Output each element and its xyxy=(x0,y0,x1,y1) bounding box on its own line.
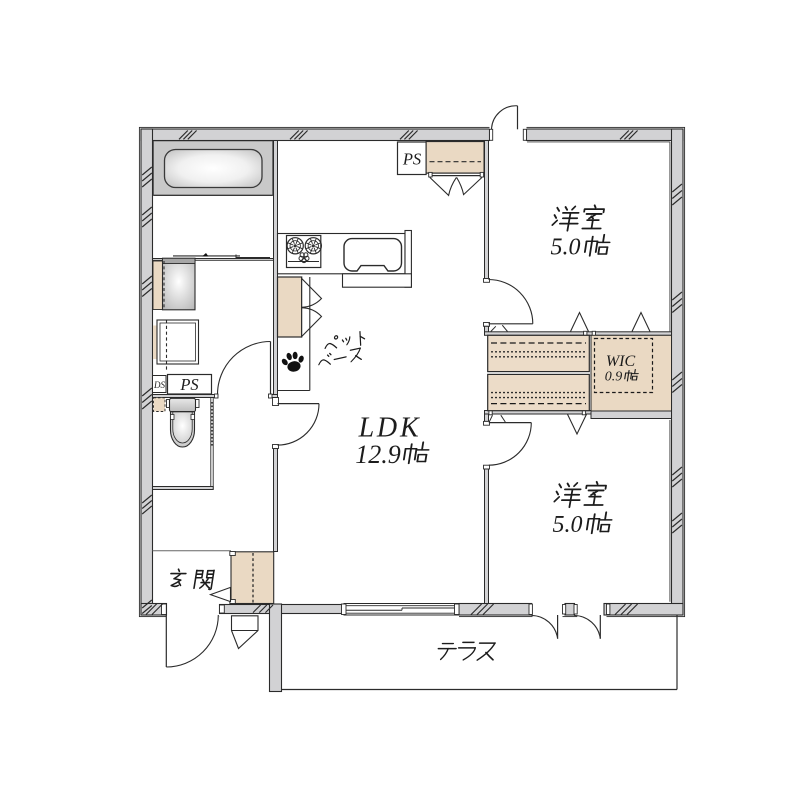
svg-text:5.0: 5.0 xyxy=(551,235,581,261)
svg-text:WIC: WIC xyxy=(606,353,636,370)
svg-text:5.0: 5.0 xyxy=(553,512,583,538)
svg-text:PS: PS xyxy=(179,375,198,394)
svg-text:PS: PS xyxy=(402,150,421,169)
svg-text:12.9: 12.9 xyxy=(355,440,401,469)
svg-text:0.9: 0.9 xyxy=(605,370,623,385)
svg-text:LDK: LDK xyxy=(358,413,422,444)
svg-text:DS: DS xyxy=(153,380,165,390)
